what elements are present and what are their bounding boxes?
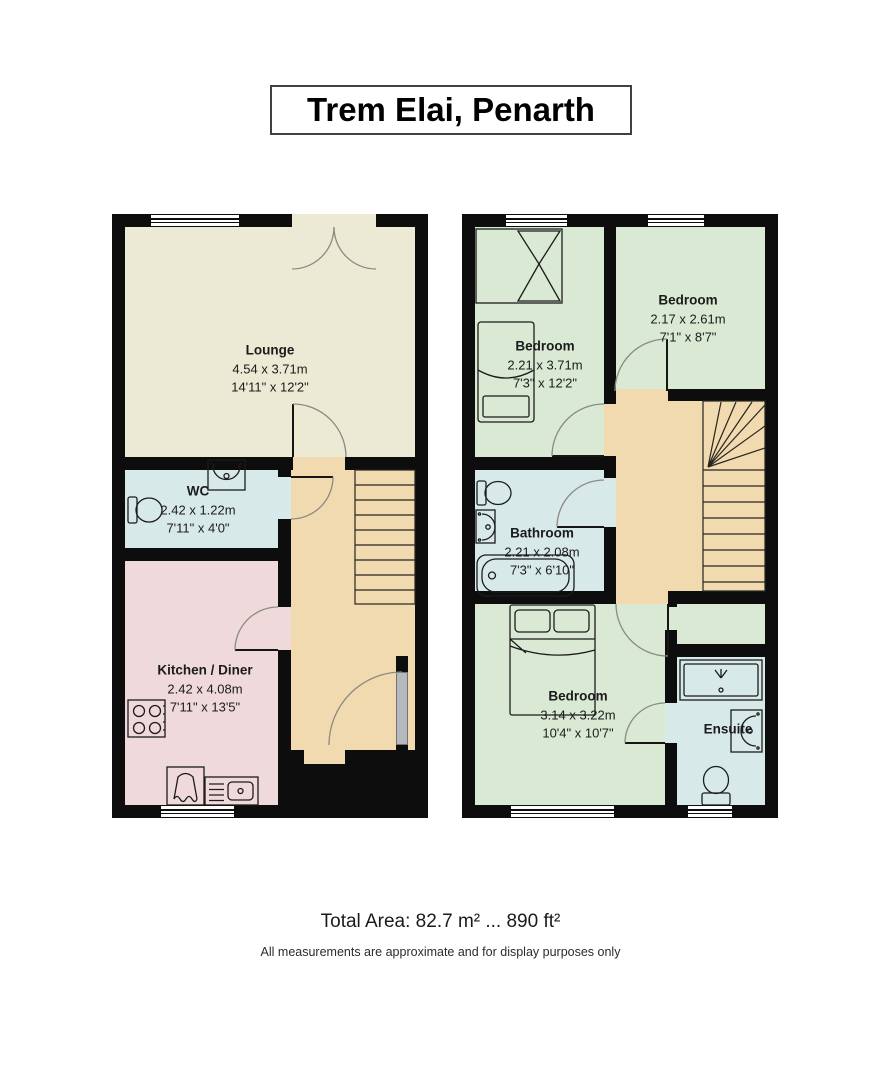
bedroom-front-window [505, 214, 568, 227]
wall [668, 591, 677, 607]
kitchen-window [160, 805, 235, 818]
room-landing [616, 401, 765, 591]
bedroom-back-window [510, 805, 615, 818]
ensuite-label: Ensuite [704, 721, 753, 740]
wc-door-opening [278, 477, 291, 519]
bedroom-right-window [647, 214, 705, 227]
ensuite-window [687, 805, 733, 818]
kitchen-label: Kitchen / Diner 2.42 x 4.08m 7'11" x 13'… [157, 661, 252, 716]
wall [665, 657, 677, 703]
page-title: Trem Elai, Penarth [270, 85, 632, 135]
hall-porch-recess [304, 750, 345, 764]
bedroom-back-label: Bedroom 3.14 x 3.22m 10'4" x 10'7" [540, 687, 615, 742]
disclaimer-text: All measurements are approximate and for… [0, 945, 881, 959]
bedroom-back-door-opening [616, 591, 668, 604]
patio-door-opening [292, 214, 376, 227]
bathroom-label: Bathroom 2.21 x 2.08m 7'3" x 6'10" [504, 524, 579, 579]
ground-floor-plan: Lounge 4.54 x 3.71m 14'11" x 12'2" WC 2.… [112, 214, 428, 818]
kitchen-door-opening [278, 607, 291, 650]
lounge-label: Lounge 4.54 x 3.71m 14'11" x 12'2" [231, 341, 309, 396]
lounge-door-opening [293, 457, 345, 470]
front-door [396, 672, 408, 745]
ensuite-door-opening [665, 703, 677, 743]
wall [677, 591, 765, 604]
wc-label: WC 2.42 x 1.22m 7'11" x 4'0" [160, 482, 235, 537]
wall [396, 745, 408, 755]
bedroom-front-door-opening [604, 404, 616, 456]
wall [396, 656, 408, 672]
wall [665, 743, 677, 805]
wall [665, 630, 677, 644]
first-floor-plan: Bedroom 2.21 x 3.71m 7'3" x 12'2" Bedroo… [462, 214, 778, 818]
bedroom-right-door-opening [616, 389, 668, 401]
lounge-window [150, 214, 240, 227]
bedroom-front-label: Bedroom 2.21 x 3.71m 7'3" x 12'2" [507, 337, 582, 392]
bedroom-right-label: Bedroom 2.17 x 2.61m 7'1" x 8'7" [650, 291, 725, 346]
bathroom-door-opening [604, 478, 616, 527]
wall [665, 644, 765, 657]
total-area-text: Total Area: 82.7 m² ... 890 ft² [0, 911, 881, 933]
floorplan-page: Trem Elai, Penarth [0, 0, 881, 1080]
